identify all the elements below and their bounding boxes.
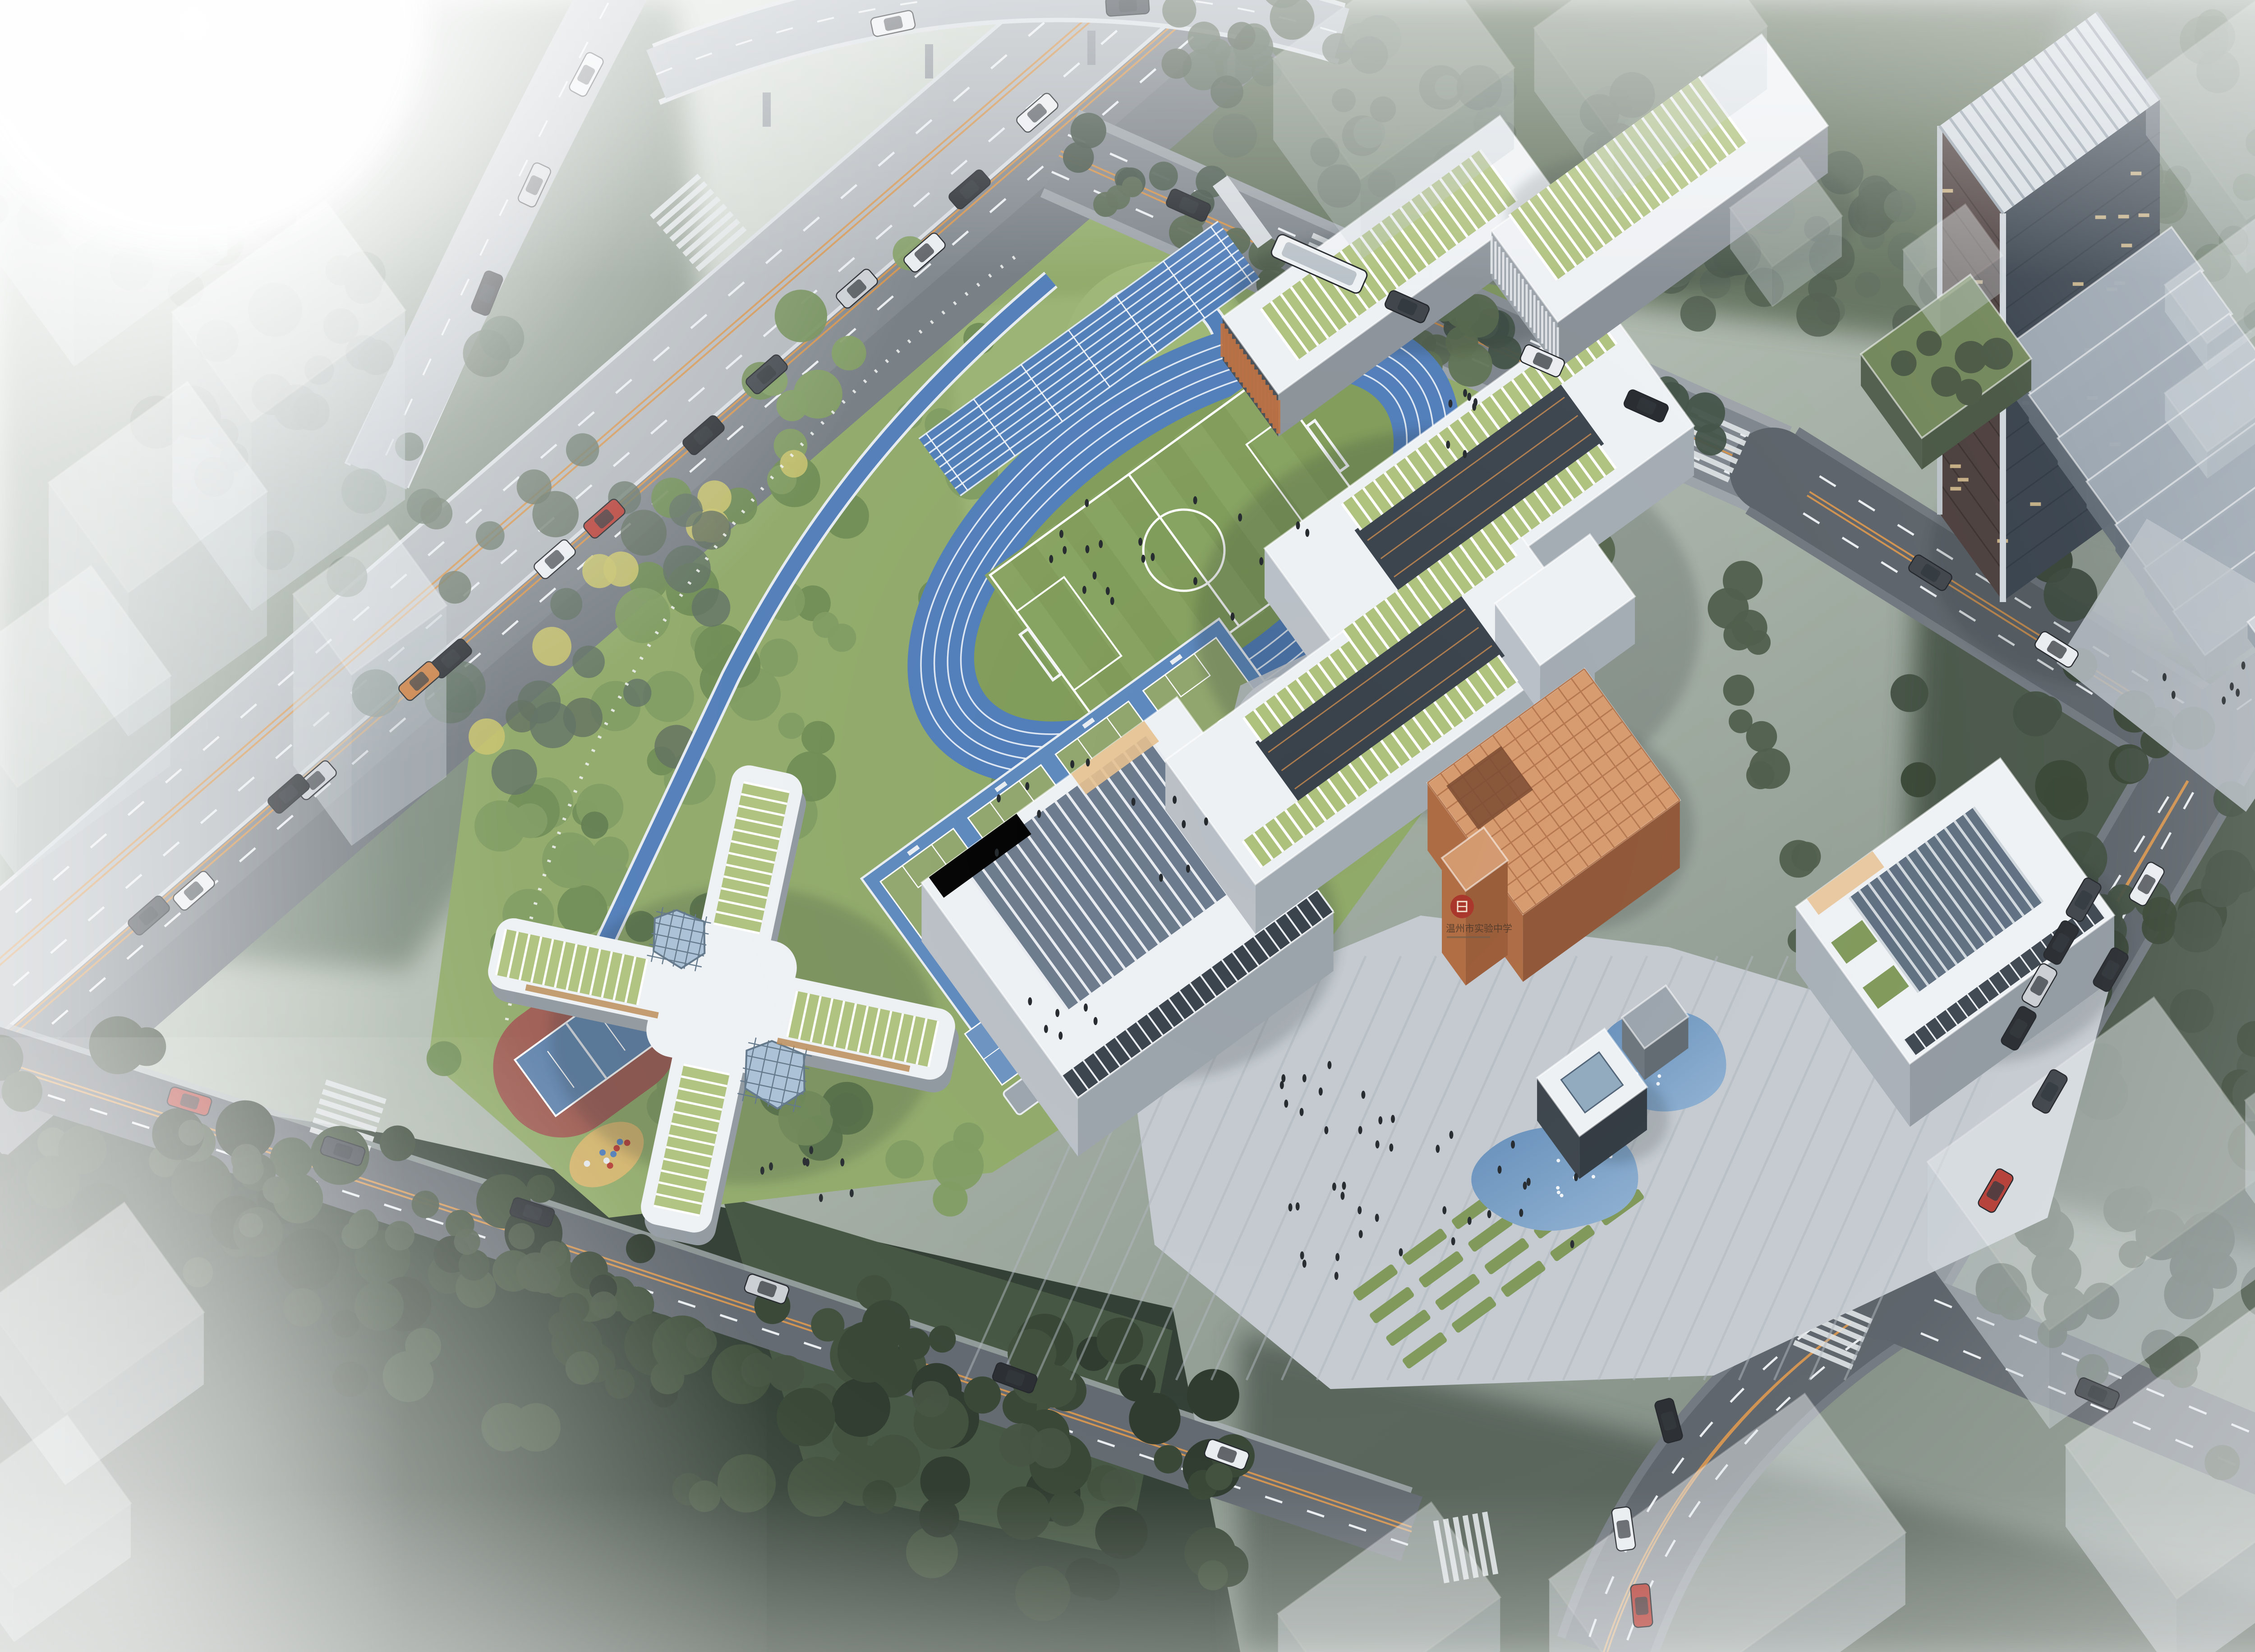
fog-overlays [0,0,2255,1652]
campus-scene-svg: 温州市实验中学 [0,0,2255,1652]
aerial-render: 温州市实验中学 [0,0,2255,1652]
bottom-left-mist [0,1037,767,1652]
